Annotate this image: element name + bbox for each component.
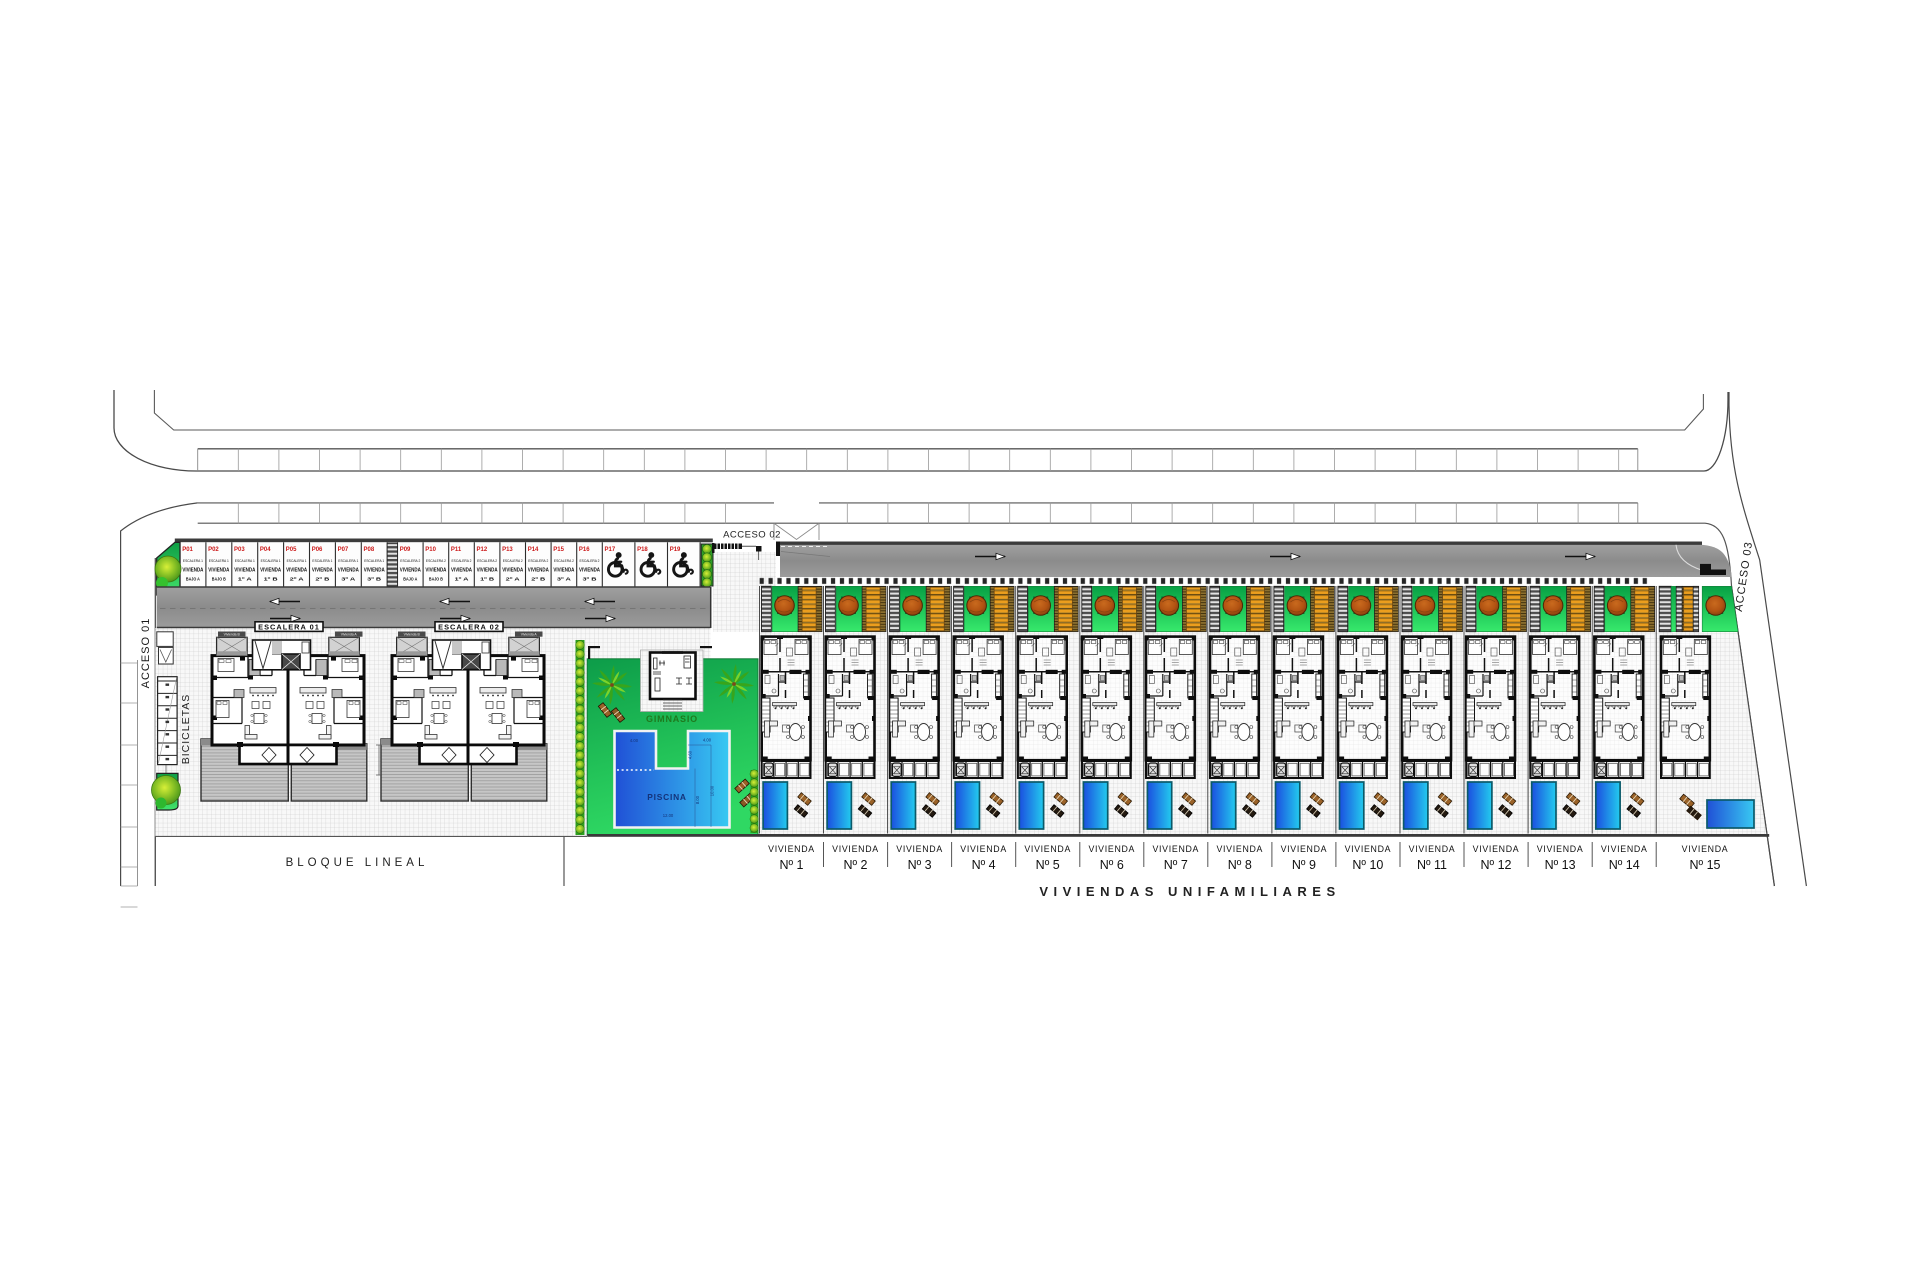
svg-text:VIVIENDA: VIVIENDA: [1409, 844, 1456, 854]
svg-text:ESCALERA 2: ESCALERA 2: [426, 558, 447, 563]
svg-text:VIVIENDA: VIVIENDA: [553, 568, 574, 574]
svg-text:P02: P02: [208, 547, 219, 553]
svg-text:VIVIENDA: VIVIENDA: [896, 844, 943, 854]
svg-text:P19: P19: [670, 547, 681, 553]
svg-text:Nº 3: Nº 3: [908, 858, 932, 872]
svg-text:Nº 11: Nº 11: [1417, 858, 1447, 872]
svg-text:P03: P03: [234, 547, 245, 553]
svg-text:4.00: 4.00: [703, 738, 712, 743]
svg-text:VIVIENDA: VIVIENDA: [960, 844, 1007, 854]
svg-text:4.00: 4.00: [630, 738, 639, 743]
svg-text:Nº 8: Nº 8: [1228, 858, 1252, 872]
svg-text:VIVIENDA: VIVIENDA: [1345, 844, 1392, 854]
svg-text:ESCALERA 2: ESCALERA 2: [580, 558, 601, 563]
svg-text:VIVIENDA: VIVIENDA: [1088, 844, 1135, 854]
svg-text:3º B: 3º B: [367, 577, 382, 583]
svg-text:12.00: 12.00: [663, 813, 674, 818]
svg-text:Nº 6: Nº 6: [1100, 858, 1124, 872]
svg-text:P13: P13: [502, 547, 513, 553]
svg-text:8.00: 8.00: [695, 795, 700, 804]
svg-text:ESCALERA 1: ESCALERA 1: [338, 558, 359, 563]
svg-text:VIVIENDA: VIVIENDA: [286, 568, 307, 574]
svg-text:3º B: 3º B: [583, 577, 598, 583]
svg-text:Nº 12: Nº 12: [1481, 858, 1512, 872]
svg-text:P16: P16: [579, 547, 590, 553]
svg-text:VIVIENDA: VIVIENDA: [832, 844, 879, 854]
svg-text:ESCALERA 2: ESCALERA 2: [477, 558, 498, 563]
svg-text:Nº 1: Nº 1: [779, 858, 803, 872]
svg-text:VIVIENDA: VIVIENDA: [1473, 844, 1520, 854]
svg-text:ESCALERA 1: ESCALERA 1: [312, 558, 333, 563]
svg-text:BAJO A: BAJO A: [186, 577, 200, 583]
svg-text:Nº 7: Nº 7: [1164, 858, 1188, 872]
svg-text:ESCALERA 1: ESCALERA 1: [287, 558, 308, 563]
svg-text:2º A: 2º A: [290, 577, 305, 583]
svg-text:VIVIENDA: VIVIENDA: [338, 568, 359, 574]
svg-text:ESCALERA 02: ESCALERA 02: [438, 622, 500, 631]
svg-text:VIVIENDA: VIVIENDA: [425, 568, 446, 574]
svg-text:P18: P18: [637, 547, 648, 553]
svg-text:Nº 5: Nº 5: [1036, 858, 1060, 872]
svg-text:ESCALERA 1: ESCALERA 1: [209, 558, 230, 563]
svg-text:P08: P08: [364, 547, 375, 553]
svg-text:ESCALERA 2: ESCALERA 2: [554, 558, 575, 563]
svg-text:P12: P12: [477, 547, 488, 553]
svg-text:Nº 13: Nº 13: [1545, 858, 1576, 872]
svg-text:VIVIENDA: VIVIENDA: [502, 568, 523, 574]
svg-text:VIVIENDA: VIVIENDA: [451, 568, 472, 574]
svg-text:BAJO B: BAJO B: [212, 577, 226, 583]
svg-text:ACCESO 01: ACCESO 01: [140, 618, 152, 689]
svg-text:4.60: 4.60: [688, 750, 693, 759]
svg-text:2º B: 2º B: [531, 577, 546, 583]
svg-text:ESCALERA 2: ESCALERA 2: [528, 558, 549, 563]
svg-text:3º A: 3º A: [341, 577, 356, 583]
svg-text:BAJO A: BAJO A: [403, 577, 417, 583]
svg-text:P05: P05: [286, 547, 297, 553]
svg-text:Nº 15: Nº 15: [1690, 858, 1721, 872]
svg-text:ESCALERA 1: ESCALERA 1: [364, 558, 385, 563]
svg-text:Nº 10: Nº 10: [1352, 858, 1383, 872]
svg-text:P07: P07: [338, 547, 349, 553]
svg-text:VIVIENDA: VIVIENDA: [477, 568, 498, 574]
svg-text:ESCALERA 2: ESCALERA 2: [400, 558, 421, 563]
svg-text:VIVIENDA: VIVIENDA: [312, 568, 333, 574]
svg-text:P04: P04: [260, 547, 271, 553]
svg-text:P10: P10: [425, 547, 436, 553]
svg-text:ESCALERA 2: ESCALERA 2: [452, 558, 473, 563]
svg-text:VIVIENDA: VIVIENDA: [400, 568, 421, 574]
svg-text:2º B: 2º B: [315, 577, 330, 583]
svg-text:P11: P11: [451, 547, 462, 553]
svg-text:VIVIENDA: VIVIENDA: [1682, 844, 1729, 854]
svg-text:VIVIENDA: VIVIENDA: [1216, 844, 1263, 854]
svg-text:10.00: 10.00: [710, 785, 715, 796]
svg-text:PISCINA: PISCINA: [647, 792, 687, 802]
svg-text:Nº 14: Nº 14: [1609, 858, 1640, 872]
svg-text:VIVIENDA: VIVIENDA: [260, 568, 281, 574]
svg-text:VIVIENDA: VIVIENDA: [1537, 844, 1584, 854]
svg-text:BAJO B: BAJO B: [429, 577, 443, 583]
svg-text:BICICLETAS: BICICLETAS: [180, 694, 192, 765]
svg-text:ESCALERA 1: ESCALERA 1: [261, 558, 282, 563]
svg-text:VIVIENDA: VIVIENDA: [528, 568, 549, 574]
svg-text:VIVIENDA: VIVIENDA: [182, 568, 203, 574]
svg-text:1º B: 1º B: [264, 577, 279, 583]
svg-text:P06: P06: [312, 547, 323, 553]
svg-text:GIMNASIO: GIMNASIO: [646, 714, 698, 724]
svg-text:VIVIENDA: VIVIENDA: [234, 568, 255, 574]
svg-text:ESCALERA 01: ESCALERA 01: [258, 622, 320, 631]
svg-text:VIVIENDA: VIVIENDA: [1024, 844, 1071, 854]
svg-text:P14: P14: [528, 547, 539, 553]
svg-text:Nº 2: Nº 2: [843, 858, 867, 872]
svg-text:P09: P09: [400, 547, 411, 553]
svg-text:ESCALERA 1: ESCALERA 1: [183, 558, 204, 563]
svg-text:1º A: 1º A: [238, 577, 253, 583]
svg-text:1º B: 1º B: [480, 577, 495, 583]
svg-text:VIVIENDA: VIVIENDA: [579, 568, 600, 574]
svg-text:Nº 4: Nº 4: [972, 858, 996, 872]
svg-text:VIVIENDA: VIVIENDA: [768, 844, 815, 854]
svg-text:3º A: 3º A: [557, 577, 572, 583]
svg-text:P01: P01: [182, 547, 193, 553]
svg-text:ESCALERA 1: ESCALERA 1: [235, 558, 256, 563]
svg-text:VIVIENDA: VIVIENDA: [364, 568, 385, 574]
svg-text:VIVIENDA: VIVIENDA: [1601, 844, 1648, 854]
svg-text:ESCALERA 2: ESCALERA 2: [503, 558, 524, 563]
svg-text:1º A: 1º A: [455, 577, 470, 583]
svg-text:2º A: 2º A: [506, 577, 521, 583]
svg-text:VIVIENDA: VIVIENDA: [1281, 844, 1328, 854]
svg-text:P15: P15: [553, 547, 564, 553]
svg-text:VIVIENDA: VIVIENDA: [208, 568, 229, 574]
svg-text:BLOQUE LINEAL: BLOQUE LINEAL: [286, 857, 429, 869]
svg-text:ACCESO 02: ACCESO 02: [723, 530, 781, 541]
svg-text:P17: P17: [605, 547, 616, 553]
svg-text:Nº 9: Nº 9: [1292, 858, 1316, 872]
svg-text:VIVIENDA: VIVIENDA: [1152, 844, 1199, 854]
svg-text:VIVIENDAS UNIFAMILIARES: VIVIENDAS UNIFAMILIARES: [1039, 884, 1340, 899]
